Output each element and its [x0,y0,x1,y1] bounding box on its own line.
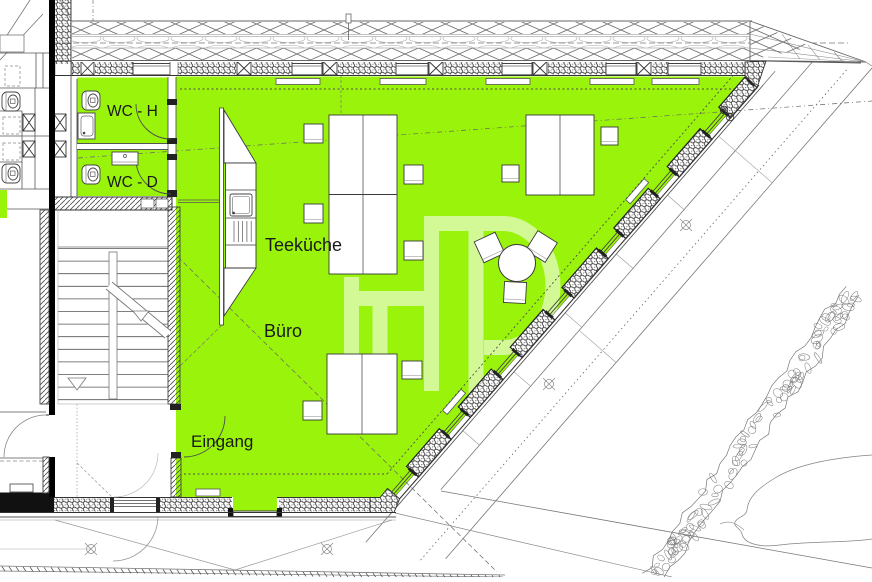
svg-text:Teeküche: Teeküche [265,235,342,255]
svg-text:WC - D: WC - D [107,174,158,191]
svg-text:Büro: Büro [264,321,302,341]
svg-text:WC - H: WC - H [107,103,158,120]
svg-text:Eingang: Eingang [191,432,253,451]
